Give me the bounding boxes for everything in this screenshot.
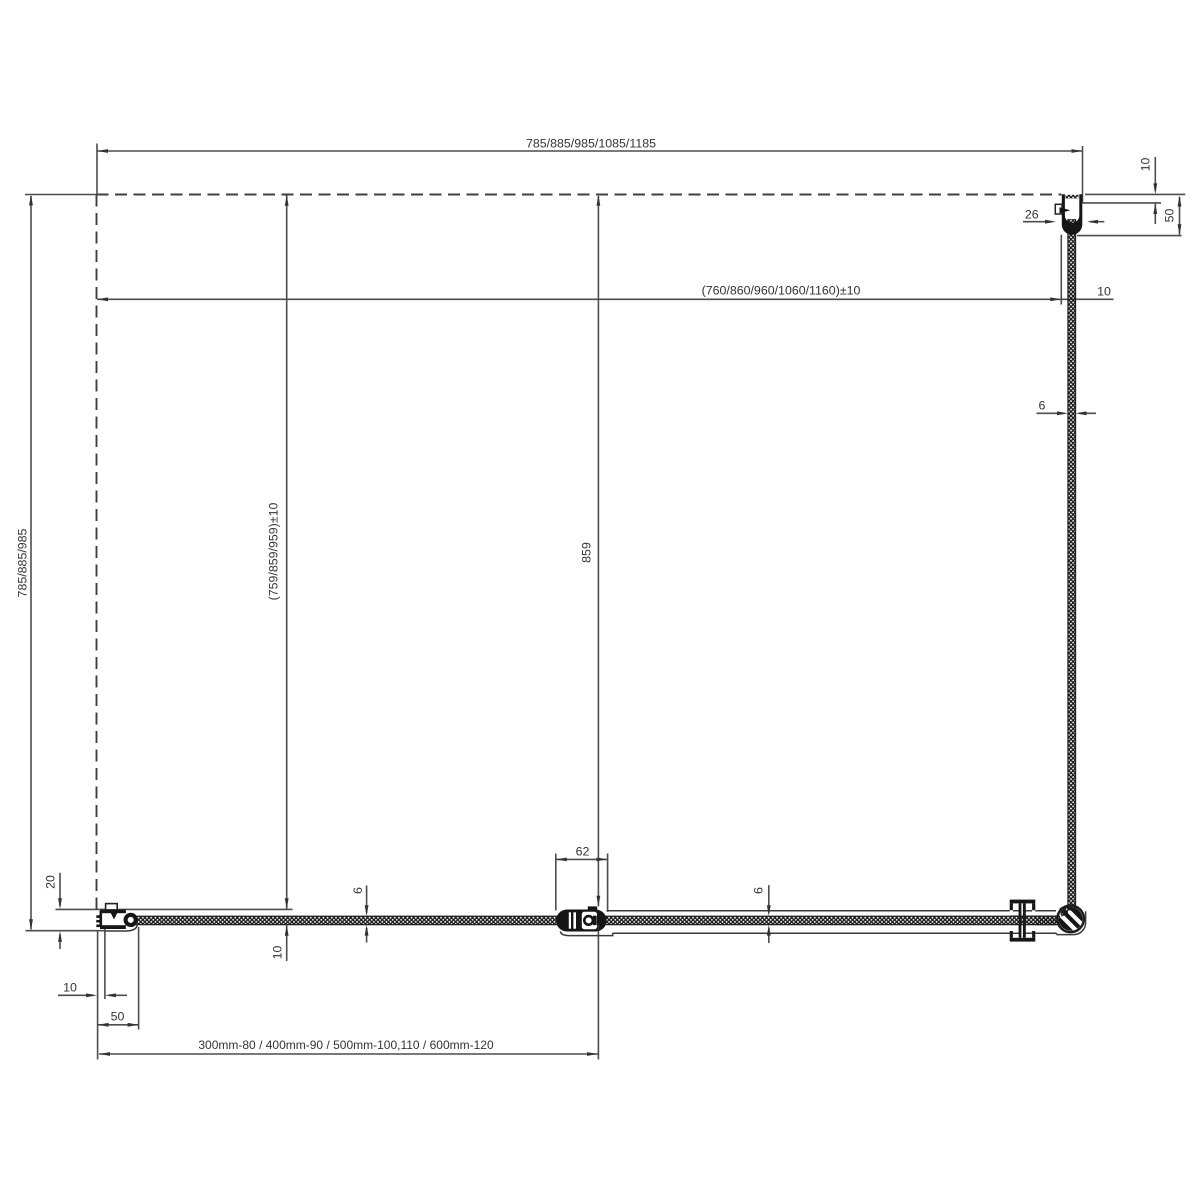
- svg-text:859: 859: [580, 542, 594, 563]
- svg-text:785/885/985: 785/885/985: [16, 528, 30, 597]
- svg-text:20: 20: [44, 875, 58, 889]
- svg-text:6: 6: [752, 887, 766, 894]
- svg-text:(759/859/959)±10: (759/859/959)±10: [267, 503, 281, 601]
- svg-text:10: 10: [271, 946, 285, 960]
- svg-text:50: 50: [1163, 209, 1177, 223]
- svg-text:300mm-80 / 400mm-90 / 500mm-10: 300mm-80 / 400mm-90 / 500mm-100,110 / 60…: [198, 1038, 494, 1052]
- svg-text:10: 10: [1139, 158, 1153, 172]
- svg-text:10: 10: [63, 981, 77, 995]
- svg-text:6: 6: [1039, 399, 1046, 413]
- svg-text:(760/860/960/1060/1160)±10: (760/860/960/1060/1160)±10: [702, 284, 861, 298]
- svg-text:50: 50: [111, 1010, 125, 1024]
- svg-text:785/885/985/1085/1185: 785/885/985/1085/1185: [526, 137, 656, 151]
- svg-text:26: 26: [1025, 208, 1039, 222]
- svg-text:10: 10: [1097, 285, 1111, 299]
- svg-text:62: 62: [576, 845, 590, 859]
- svg-text:6: 6: [351, 887, 365, 894]
